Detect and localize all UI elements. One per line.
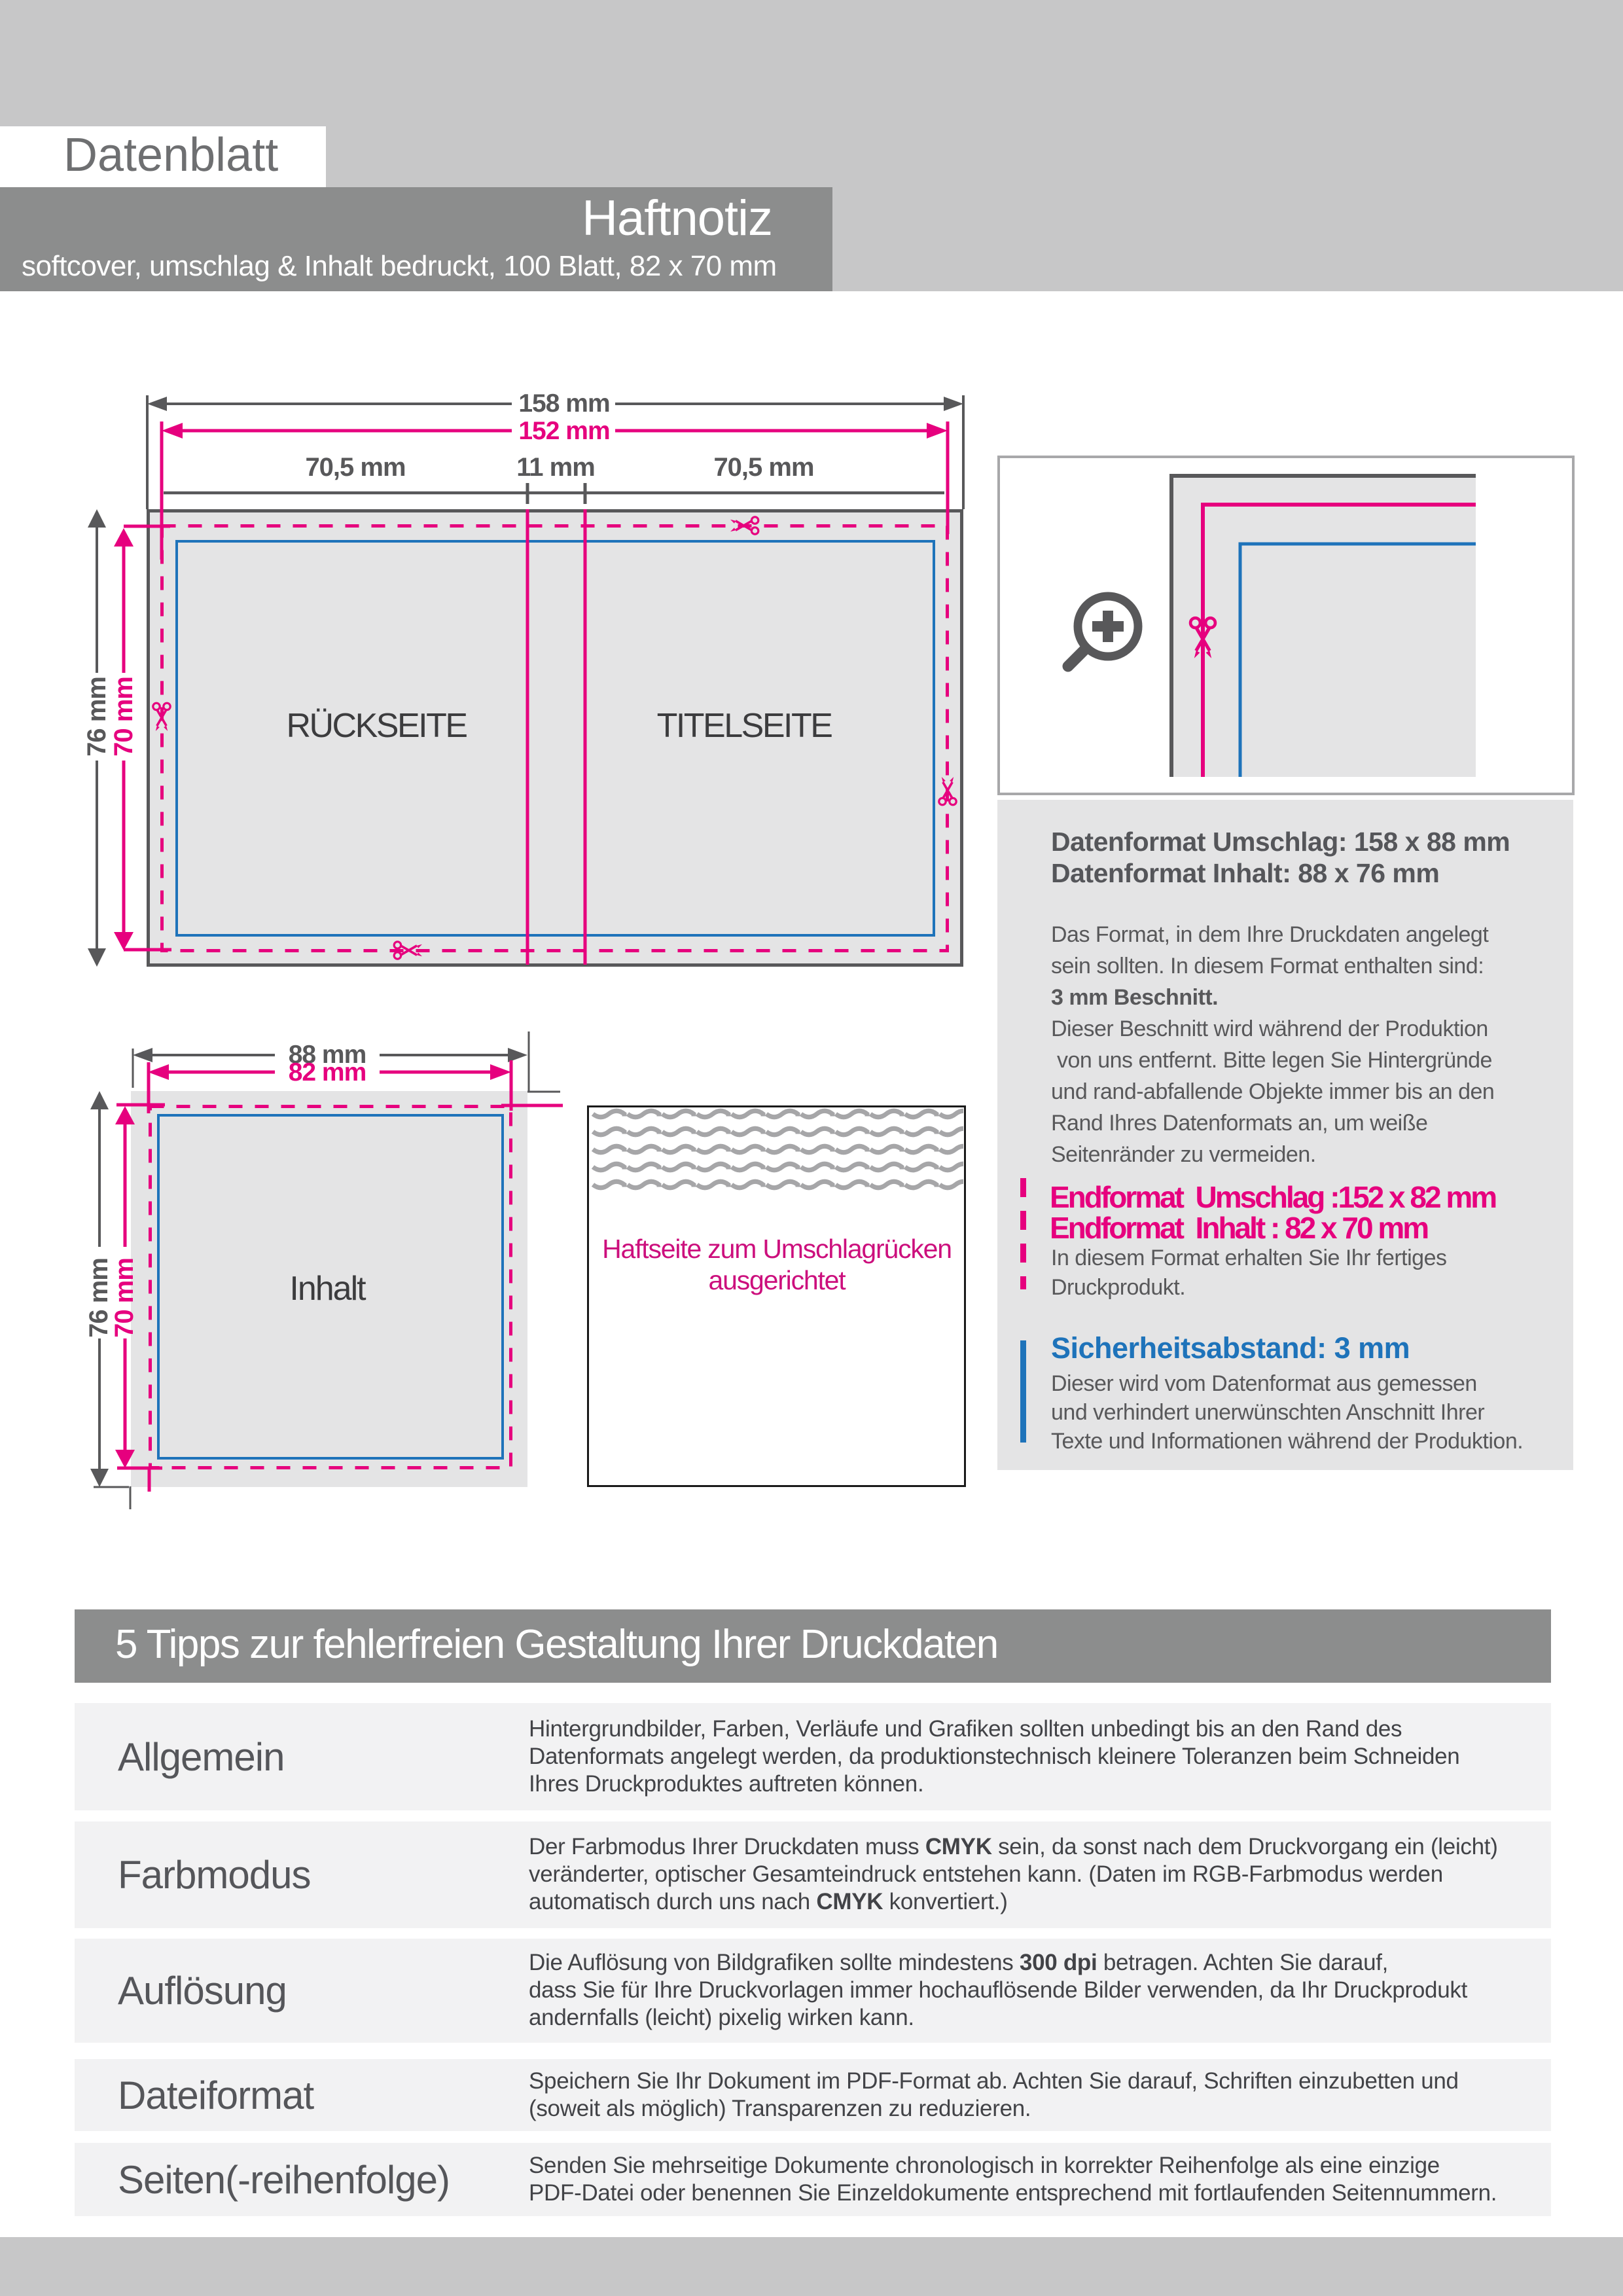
svg-text:70 mm: 70 mm	[110, 1258, 139, 1338]
svg-text:RÜCKSEITE: RÜCKSEITE	[286, 707, 467, 745]
svg-text:76 mm: 76 mm	[84, 1258, 113, 1338]
svg-text:11 mm: 11 mm	[516, 453, 595, 482]
svg-text:152 mm: 152 mm	[518, 417, 609, 445]
svg-text:82 mm: 82 mm	[289, 1058, 366, 1086]
svg-text:70,5 mm: 70,5 mm	[713, 453, 813, 482]
svg-text:Haftseite zum Umschlagrücken: Haftseite zum Umschlagrücken	[602, 1234, 952, 1264]
svg-text:70,5 mm: 70,5 mm	[305, 453, 405, 482]
svg-text:TITELSEITE: TITELSEITE	[657, 707, 832, 745]
svg-text:ausgerichtet: ausgerichtet	[709, 1265, 847, 1295]
svg-text:70 mm: 70 mm	[109, 677, 138, 757]
svg-text:76 mm: 76 mm	[82, 677, 111, 757]
svg-text:158 mm: 158 mm	[518, 389, 609, 418]
svg-text:Inhalt: Inhalt	[289, 1270, 366, 1308]
